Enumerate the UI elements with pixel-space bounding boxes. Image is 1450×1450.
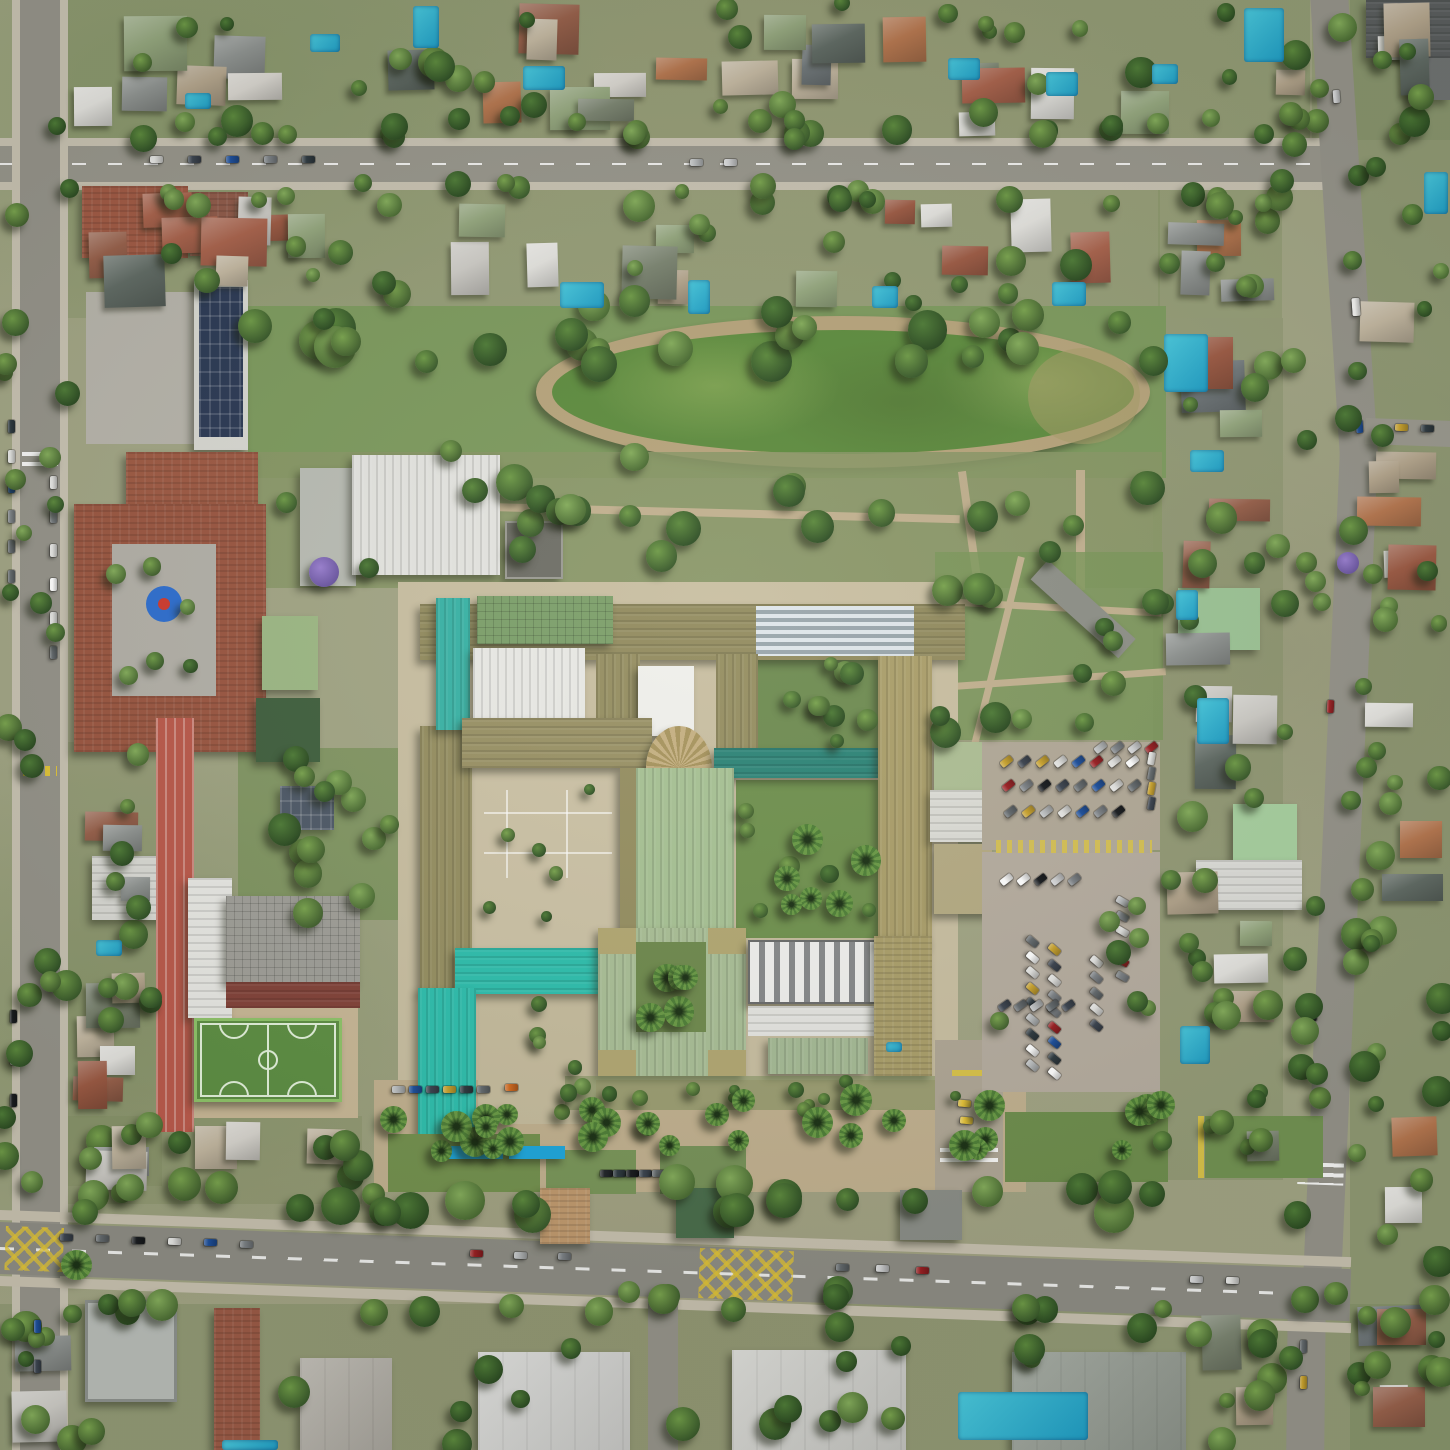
atmosphere-overlay bbox=[0, 0, 1450, 1450]
aerial-orthophoto bbox=[0, 0, 1450, 1450]
